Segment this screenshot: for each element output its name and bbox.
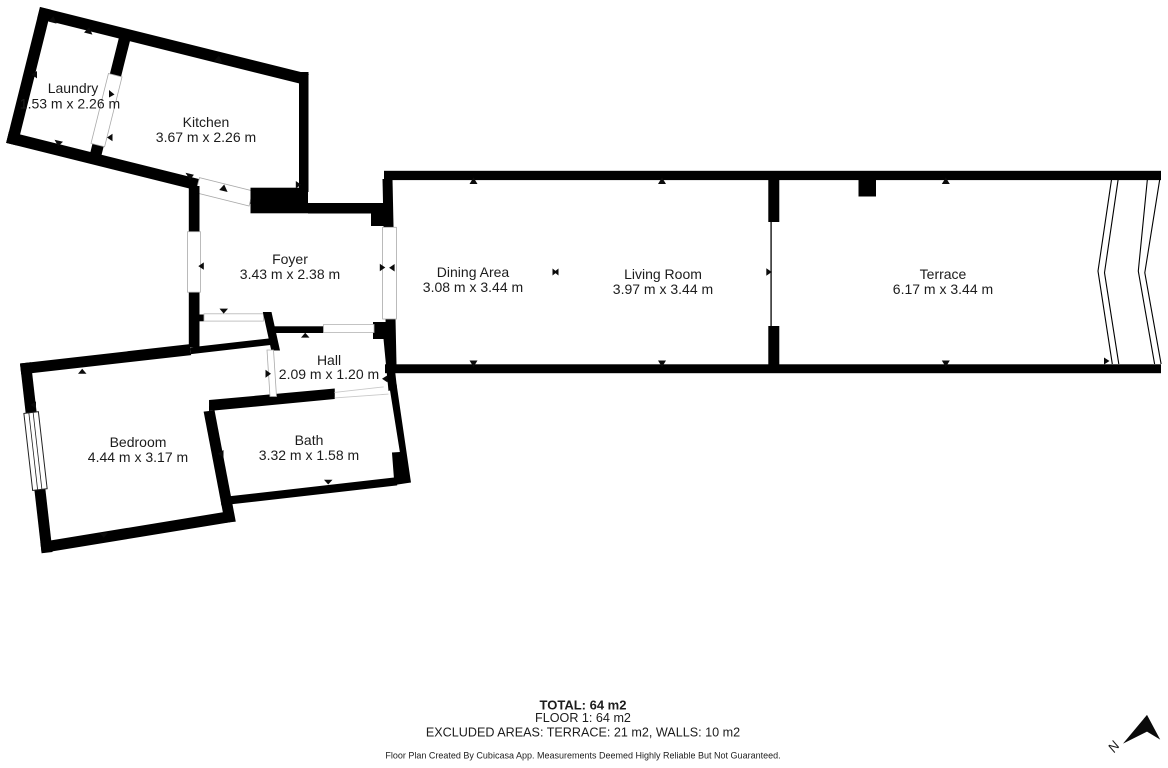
svg-text:Terrace: Terrace: [920, 266, 967, 282]
svg-text:2.09 m x 1.20 m: 2.09 m x 1.20 m: [279, 366, 379, 382]
svg-text:3.08 m x 3.44 m: 3.08 m x 3.44 m: [423, 279, 523, 295]
svg-text:3.43 m x 2.38 m: 3.43 m x 2.38 m: [240, 266, 340, 282]
svg-text:Foyer: Foyer: [272, 251, 308, 267]
svg-text:Laundry: Laundry: [48, 80, 99, 96]
svg-text:Bath: Bath: [295, 432, 324, 448]
svg-text:3.32 m x 1.58 m: 3.32 m x 1.58 m: [259, 447, 359, 463]
svg-text:Dining Area: Dining Area: [437, 264, 510, 280]
svg-text:4.44 m x 3.17 m: 4.44 m x 3.17 m: [88, 449, 188, 465]
svg-text:1.53 m x 2.26 m: 1.53 m x 2.26 m: [20, 96, 120, 112]
svg-text:FLOOR 1: 64 m2: FLOOR 1: 64 m2: [535, 711, 631, 725]
svg-text:3.67 m x 2.26 m: 3.67 m x 2.26 m: [156, 129, 256, 145]
svg-text:EXCLUDED AREAS: TERRACE: 21 m2: EXCLUDED AREAS: TERRACE: 21 m2, WALLS: 1…: [426, 726, 740, 740]
svg-text:Bedroom: Bedroom: [110, 434, 167, 450]
svg-text:Kitchen: Kitchen: [183, 114, 230, 130]
svg-text:6.17 m x 3.44 m: 6.17 m x 3.44 m: [893, 281, 993, 297]
svg-text:Living Room: Living Room: [624, 266, 702, 282]
svg-text:3.97 m x 3.44 m: 3.97 m x 3.44 m: [613, 281, 713, 297]
svg-text:Floor Plan Created By Cubicasa: Floor Plan Created By Cubicasa App. Meas…: [385, 751, 780, 761]
